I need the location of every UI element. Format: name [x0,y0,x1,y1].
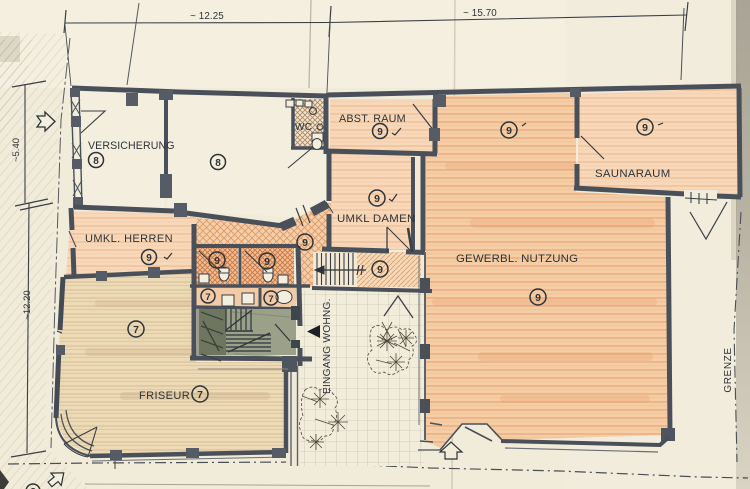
svg-text:~12.20: ~12.20 [22,290,33,319]
svg-text:9: 9 [146,253,152,264]
svg-text:9: 9 [377,264,383,276]
svg-text:WC: WC [295,122,312,133]
svg-text:9: 9 [214,255,220,267]
svg-text:7: 7 [205,292,210,303]
svg-text:GRENZE: GRENZE [723,347,734,392]
svg-text:GEWERBL. NUTZUNG: GEWERBL. NUTZUNG [456,253,578,265]
svg-text:9: 9 [642,122,648,134]
svg-text:7: 7 [197,389,203,401]
svg-text:9: 9 [302,237,308,249]
svg-text:9: 9 [377,127,383,138]
svg-text:~ 12.25: ~ 12.25 [190,11,224,22]
svg-text:UMKL DAMEN: UMKL DAMEN [337,213,416,225]
svg-text:SAUNARAUM: SAUNARAUM [595,168,670,180]
svg-text:~ 15.70: ~ 15.70 [463,8,497,19]
svg-text:VERSICHERUNG: VERSICHERUNG [88,140,175,152]
svg-text:9: 9 [535,292,541,304]
svg-text:9: 9 [374,193,380,205]
svg-text:EINGANG WOHNG.: EINGANG WOHNG. [322,298,333,394]
svg-text:ABST. RAUM: ABST. RAUM [339,113,406,125]
svg-text:UMKL. HERREN: UMKL. HERREN [85,233,173,245]
svg-text:8: 8 [93,156,99,167]
svg-text:8: 8 [215,158,221,169]
svg-text:9: 9 [506,125,512,137]
svg-text:FRISEUR: FRISEUR [139,390,190,402]
svg-text:~5.40: ~5.40 [11,138,22,162]
svg-text:7: 7 [268,294,273,305]
svg-text:9: 9 [264,256,270,268]
svg-text:7: 7 [133,324,139,336]
